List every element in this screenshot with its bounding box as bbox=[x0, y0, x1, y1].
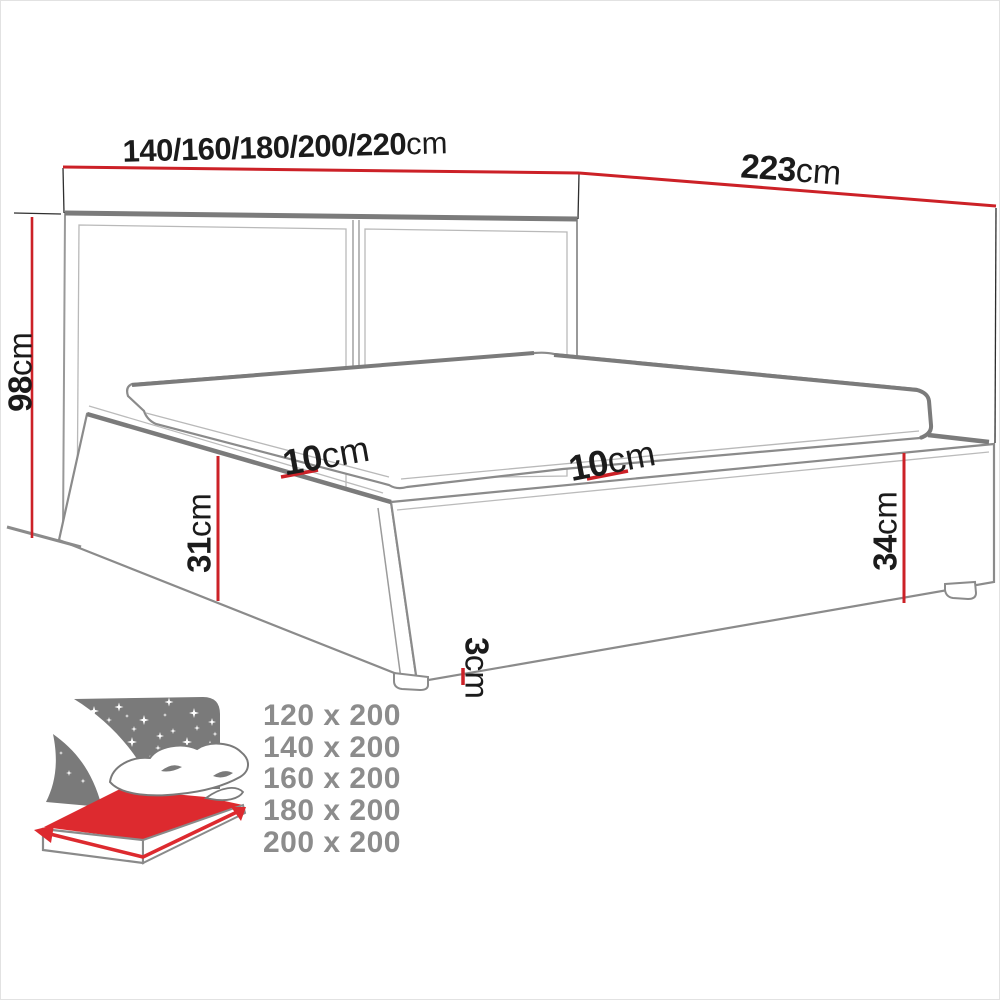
length-dimension-label: 223cm bbox=[740, 149, 843, 190]
length-unit: cm bbox=[795, 151, 843, 192]
available-sizes-list: 120 x 200 140 x 200 160 x 200 180 x 200 … bbox=[263, 700, 401, 858]
side-left-value: 31 bbox=[181, 537, 218, 573]
height-dimension-label: 98cm bbox=[4, 332, 37, 412]
night-sky-sliver bbox=[46, 734, 102, 807]
side-right-value: 34 bbox=[867, 535, 904, 571]
leg-height-dimension-label: 3cm bbox=[461, 637, 494, 699]
size-item: 180 x 200 bbox=[263, 795, 401, 827]
bed-size-icon bbox=[34, 697, 248, 863]
width-value: 140/160/180/200/220 bbox=[122, 126, 406, 168]
size-item: 120 x 200 bbox=[263, 700, 401, 732]
width-dimension-label: 140/160/180/200/220cm bbox=[122, 127, 448, 166]
size-item: 140 x 200 bbox=[263, 732, 401, 764]
bed-diagram-page: 140/160/180/200/220cm 223cm 98cm 10cm 10… bbox=[0, 0, 1000, 1000]
side-left-unit: cm bbox=[181, 493, 218, 537]
length-value: 223 bbox=[739, 147, 797, 189]
front-left-leg bbox=[394, 673, 428, 690]
size-item: 200 x 200 bbox=[263, 827, 401, 859]
leg-height-value: 3 bbox=[459, 637, 496, 655]
side-right-dimension-label: 34cm bbox=[869, 491, 902, 571]
icon-pillow-edge bbox=[206, 788, 243, 800]
size-item: 160 x 200 bbox=[263, 763, 401, 795]
width-unit: cm bbox=[406, 125, 448, 161]
side-left-dimension-label: 31cm bbox=[183, 493, 216, 573]
height-value: 98 bbox=[2, 376, 39, 412]
ledge-left-unit: cm bbox=[318, 428, 372, 477]
front-right-leg bbox=[945, 582, 976, 599]
leg-height-unit: cm bbox=[459, 655, 496, 699]
side-right-unit: cm bbox=[867, 491, 904, 535]
height-unit: cm bbox=[2, 332, 39, 376]
